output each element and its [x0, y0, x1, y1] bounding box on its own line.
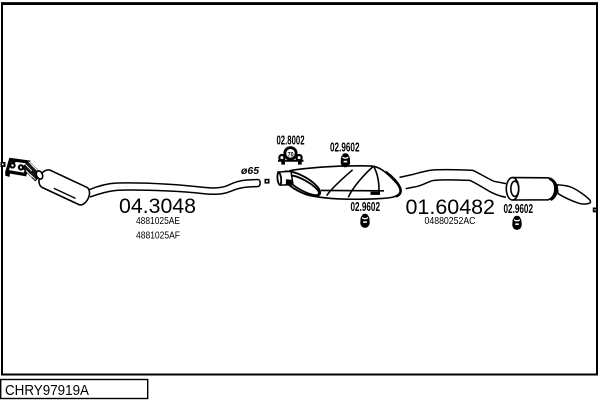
- svg-text:70: 70: [288, 151, 294, 158]
- svg-text:02.8002: 02.8002: [277, 134, 305, 148]
- svg-text:CHRY97919A: CHRY97919A: [5, 383, 89, 399]
- svg-text:ø65: ø65: [241, 166, 259, 177]
- svg-text:04880252AC: 04880252AC: [425, 215, 476, 227]
- svg-text:02.9602: 02.9602: [504, 202, 534, 216]
- svg-text:02.9602: 02.9602: [330, 141, 360, 155]
- svg-text:4881025AE: 4881025AE: [136, 215, 180, 227]
- svg-text:4881025AF: 4881025AF: [136, 230, 180, 242]
- svg-text:02.9602: 02.9602: [351, 200, 381, 214]
